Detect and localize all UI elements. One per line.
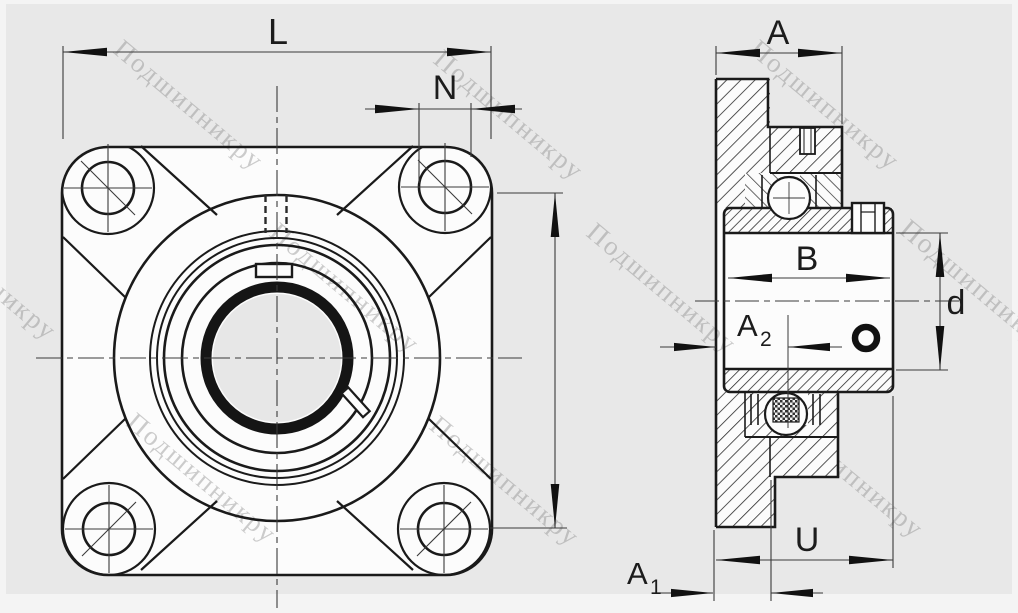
svg-text:A: A [737, 308, 758, 343]
seal-detail [773, 398, 799, 422]
set-screw-front [256, 264, 292, 277]
technical-drawing-page: Подшипникру Подшипникру Подшипникру Подш… [0, 0, 1018, 613]
dim-label-A: A [767, 14, 790, 52]
dim-label-U: U [795, 521, 820, 559]
set-screw-side [852, 203, 884, 233]
dim-label-B: B [796, 240, 819, 278]
dim-label-d: d [947, 284, 966, 322]
screw-hole-ring [855, 327, 877, 349]
svg-text:A: A [627, 556, 648, 591]
dim-label-N: N [433, 69, 458, 107]
dim-label-L: L [268, 11, 288, 52]
housing-screw-channel [800, 128, 815, 154]
bearing-drawing-canvas: Подшипникру Подшипникру Подшипникру Подш… [0, 0, 1018, 613]
svg-text:2: 2 [760, 328, 772, 351]
svg-text:1: 1 [650, 576, 662, 599]
